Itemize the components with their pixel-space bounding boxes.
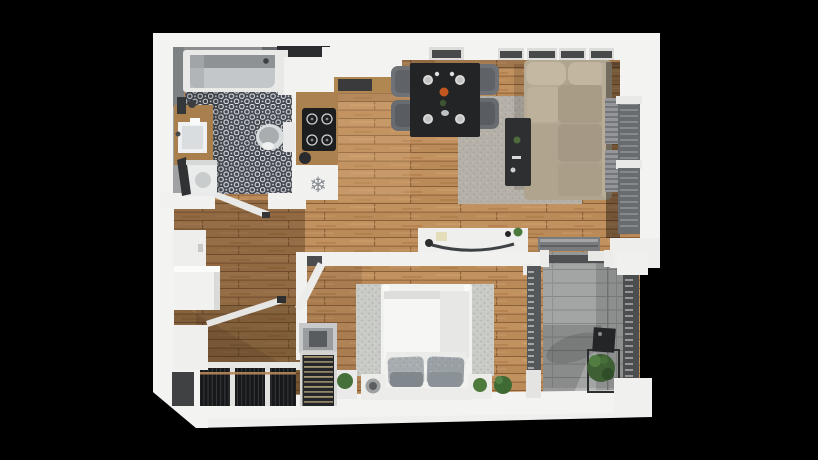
svg-text:❄: ❄	[309, 174, 327, 197]
